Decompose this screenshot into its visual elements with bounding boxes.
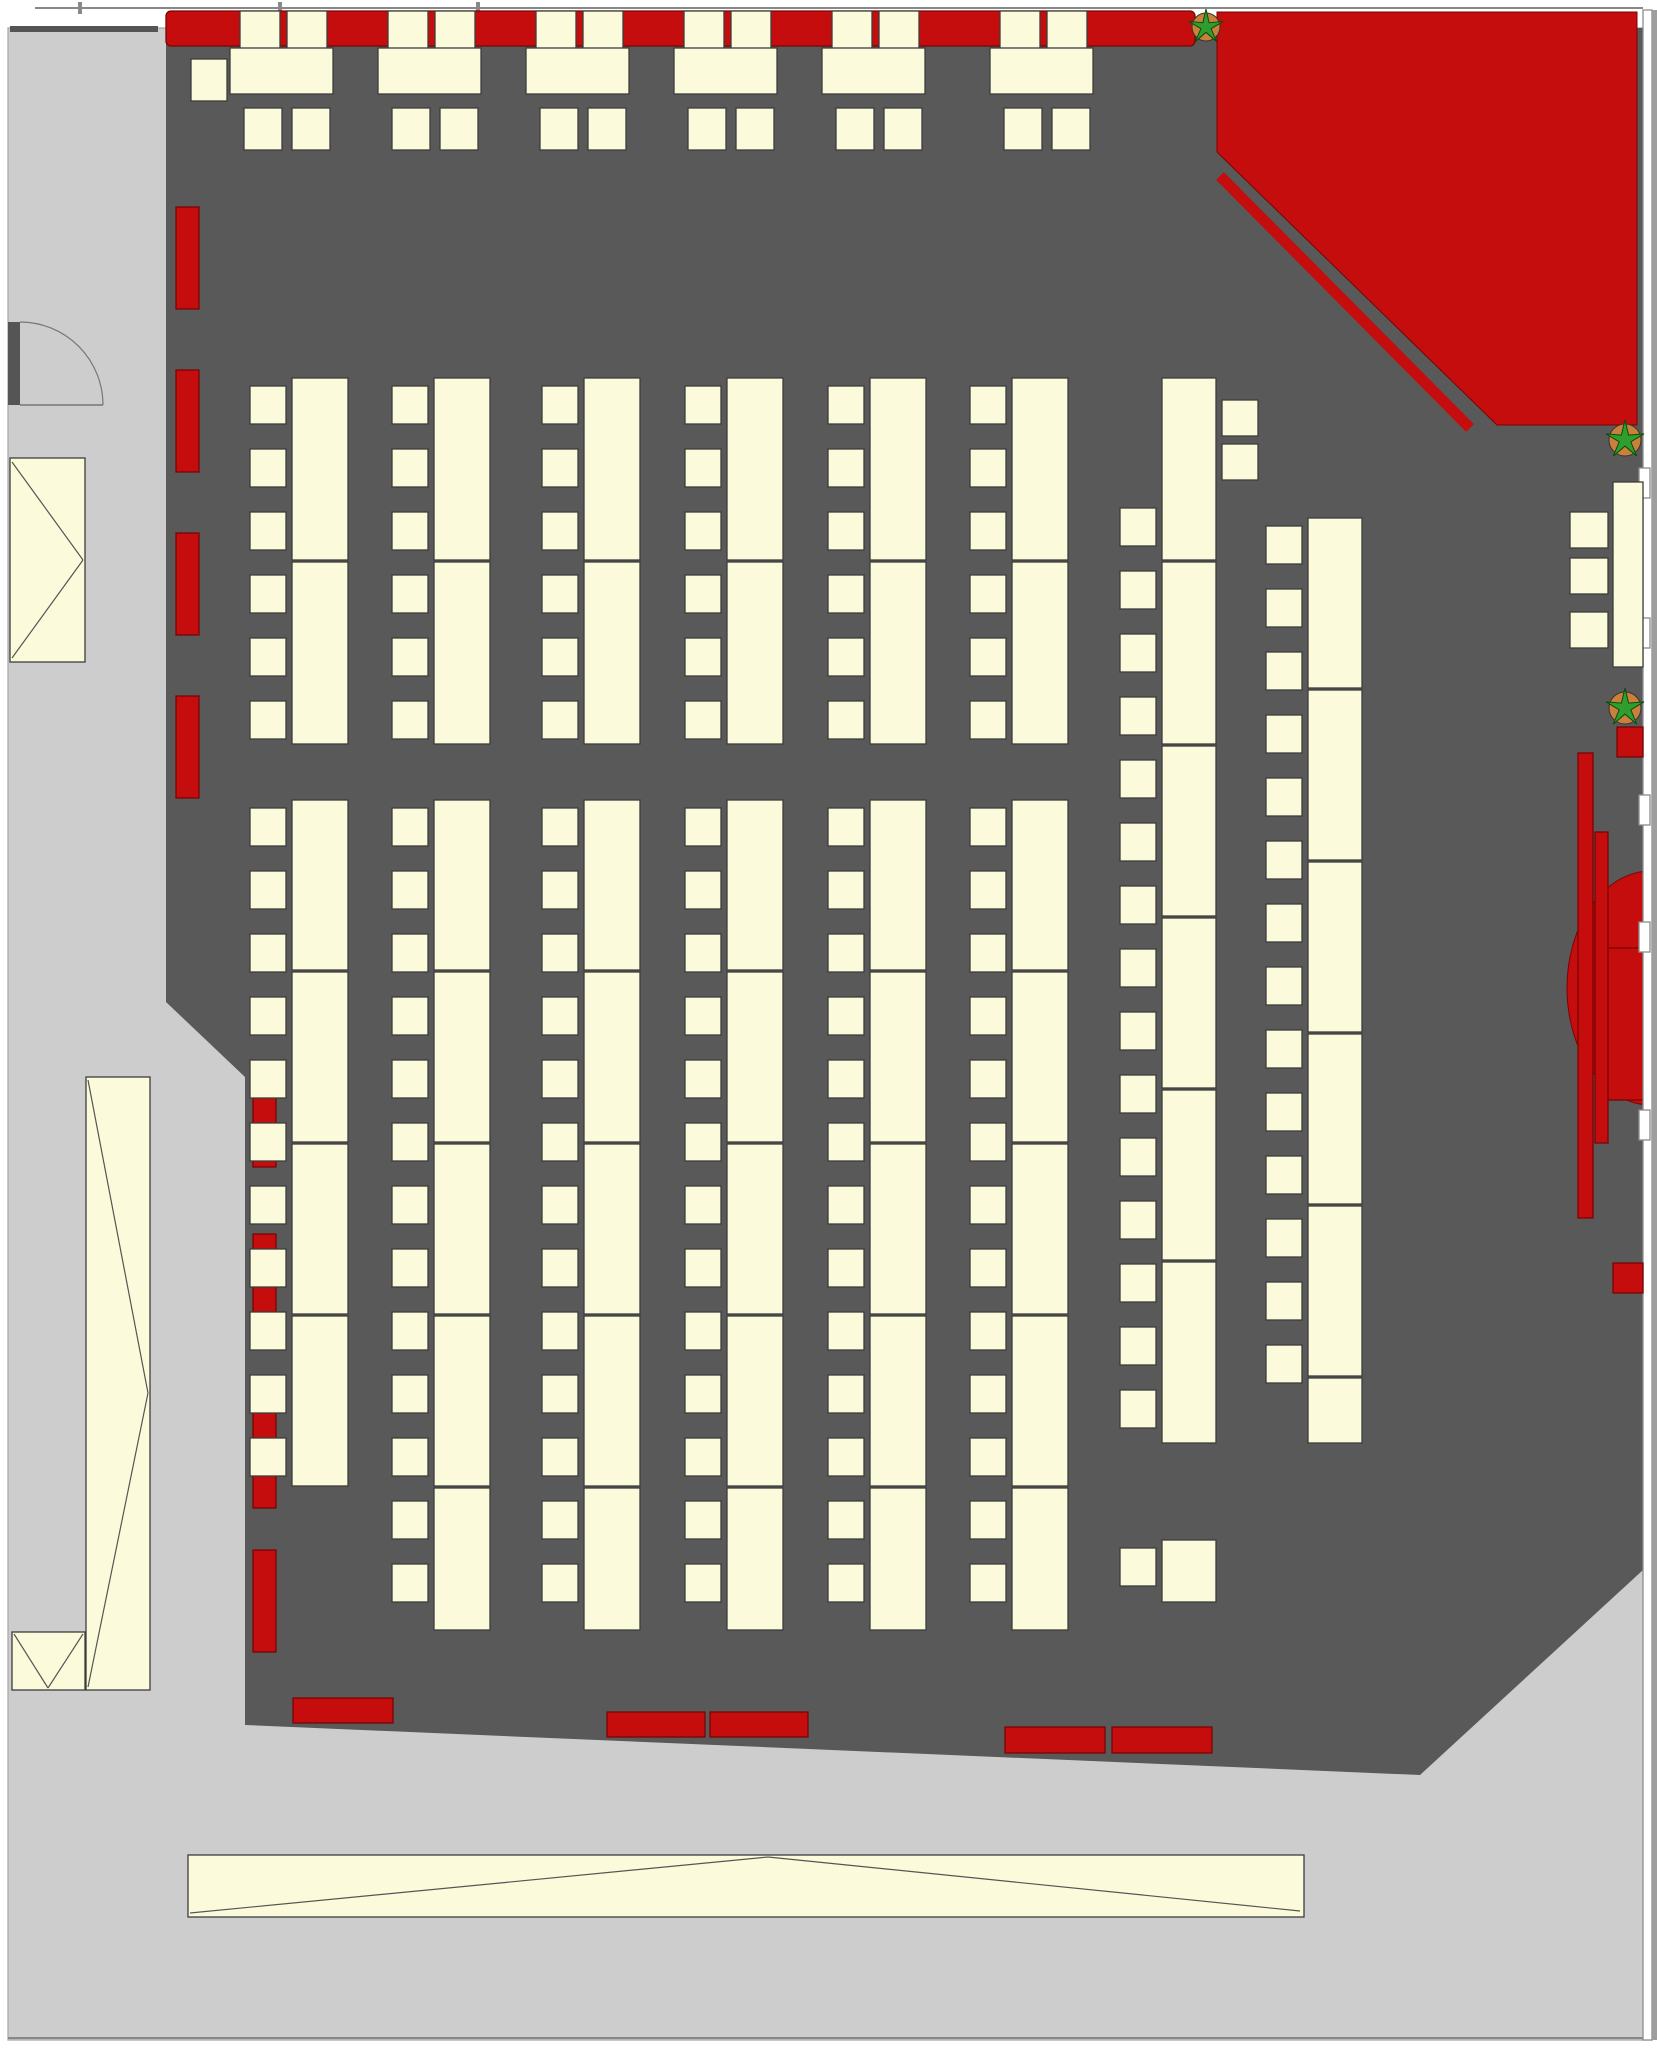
chair[interactable]: [250, 997, 286, 1035]
chair[interactable]: [828, 1501, 864, 1539]
chair[interactable]: [542, 575, 578, 613]
dining-table[interactable]: [870, 1316, 926, 1486]
bench-chair[interactable]: [536, 11, 576, 49]
chair[interactable]: [1266, 778, 1302, 816]
dining-table[interactable]: [378, 48, 481, 94]
bench-chair[interactable]: [1000, 11, 1040, 49]
chair[interactable]: [828, 512, 864, 550]
chair[interactable]: [392, 997, 428, 1035]
chair[interactable]: [250, 934, 286, 972]
chair[interactable]: [1004, 108, 1042, 150]
chair[interactable]: [542, 1123, 578, 1161]
dining-table[interactable]: [526, 48, 629, 94]
chair[interactable]: [392, 1123, 428, 1161]
chair[interactable]: [1266, 841, 1302, 879]
chair[interactable]: [542, 386, 578, 424]
chair[interactable]: [1120, 1075, 1156, 1113]
chair[interactable]: [392, 449, 428, 487]
red-stool[interactable]: [1617, 727, 1643, 757]
window-frame: [1639, 922, 1650, 952]
dining-table[interactable]: [1162, 1540, 1216, 1602]
chair[interactable]: [1120, 949, 1156, 987]
dining-table[interactable]: [292, 972, 348, 1142]
chair[interactable]: [1266, 589, 1302, 627]
dining-table[interactable]: [1162, 1262, 1216, 1443]
chair[interactable]: [685, 512, 721, 550]
dining-table[interactable]: [727, 800, 783, 970]
bottom-bench[interactable]: [607, 1712, 705, 1737]
chair[interactable]: [191, 59, 227, 101]
chair[interactable]: [1052, 108, 1090, 150]
chair[interactable]: [542, 512, 578, 550]
chair[interactable]: [1120, 1327, 1156, 1365]
floor-plan: [0, 0, 1657, 2050]
chair[interactable]: [250, 449, 286, 487]
chair[interactable]: [1266, 1156, 1302, 1194]
chair[interactable]: [1266, 967, 1302, 1005]
chair[interactable]: [685, 638, 721, 676]
chair[interactable]: [1120, 760, 1156, 798]
dining-table[interactable]: [434, 1316, 490, 1486]
chair[interactable]: [970, 1186, 1006, 1224]
chair[interactable]: [540, 108, 578, 150]
chair[interactable]: [828, 449, 864, 487]
chair[interactable]: [542, 1501, 578, 1539]
chair[interactable]: [542, 1564, 578, 1602]
chair[interactable]: [970, 1312, 1006, 1350]
dining-table[interactable]: [292, 800, 348, 970]
chair[interactable]: [1266, 1030, 1302, 1068]
red-stool[interactable]: [1613, 1263, 1643, 1293]
chair[interactable]: [1222, 444, 1258, 480]
chair[interactable]: [685, 1438, 721, 1476]
dining-table[interactable]: [727, 1144, 783, 1314]
chair[interactable]: [392, 386, 428, 424]
chair[interactable]: [1266, 1093, 1302, 1131]
dining-table[interactable]: [584, 1144, 640, 1314]
chair[interactable]: [1266, 1219, 1302, 1257]
chair[interactable]: [685, 1312, 721, 1350]
dining-table[interactable]: [434, 562, 490, 744]
chair[interactable]: [1120, 886, 1156, 924]
chair[interactable]: [828, 808, 864, 846]
bench-chair[interactable]: [731, 11, 771, 49]
dining-table[interactable]: [1162, 746, 1216, 916]
dining-table[interactable]: [1308, 862, 1362, 1032]
dining-table[interactable]: [1308, 1378, 1362, 1443]
chair[interactable]: [828, 934, 864, 972]
dining-table[interactable]: [1012, 378, 1068, 560]
chair[interactable]: [250, 1186, 286, 1224]
dining-table[interactable]: [1613, 482, 1643, 667]
chair[interactable]: [1120, 508, 1156, 546]
chair[interactable]: [1120, 1201, 1156, 1239]
chair[interactable]: [970, 808, 1006, 846]
chair[interactable]: [250, 1249, 286, 1287]
chair[interactable]: [392, 1438, 428, 1476]
chair[interactable]: [1222, 400, 1258, 436]
chair[interactable]: [828, 386, 864, 424]
bench-chair[interactable]: [583, 11, 623, 49]
chair[interactable]: [1266, 652, 1302, 690]
chair[interactable]: [1266, 526, 1302, 564]
window-frame: [1639, 1110, 1650, 1140]
service-bar[interactable]: [253, 1550, 276, 1652]
chair[interactable]: [392, 575, 428, 613]
dining-table[interactable]: [1012, 562, 1068, 744]
chair[interactable]: [685, 1501, 721, 1539]
service-bar[interactable]: [176, 370, 199, 472]
chair[interactable]: [828, 701, 864, 739]
floor-plan-svg: [0, 0, 1657, 2050]
dining-table[interactable]: [727, 1488, 783, 1630]
chair[interactable]: [685, 1564, 721, 1602]
dining-table[interactable]: [870, 972, 926, 1142]
stage-bar[interactable]: [1578, 753, 1593, 1218]
chair[interactable]: [736, 108, 774, 150]
chair[interactable]: [828, 1186, 864, 1224]
chair[interactable]: [970, 1060, 1006, 1098]
dining-table[interactable]: [1308, 518, 1362, 688]
chair[interactable]: [828, 1438, 864, 1476]
dining-table[interactable]: [870, 1488, 926, 1630]
chair[interactable]: [392, 108, 430, 150]
chair[interactable]: [392, 1501, 428, 1539]
round-stage-table[interactable]: [1607, 948, 1643, 1100]
dining-table[interactable]: [434, 1144, 490, 1314]
bench-chair[interactable]: [1047, 11, 1087, 49]
chair[interactable]: [685, 1186, 721, 1224]
escalator[interactable]: [86, 1077, 150, 1690]
bench-chair[interactable]: [240, 11, 280, 49]
corridor-top-wall: [10, 26, 158, 32]
chair[interactable]: [1570, 512, 1608, 548]
chair[interactable]: [1266, 1282, 1302, 1320]
chair[interactable]: [588, 108, 626, 150]
chair[interactable]: [828, 1375, 864, 1413]
dining-table[interactable]: [1162, 1090, 1216, 1260]
dining-table[interactable]: [230, 48, 333, 94]
bottom-bench[interactable]: [293, 1698, 393, 1723]
chair[interactable]: [970, 575, 1006, 613]
service-bar[interactable]: [176, 207, 199, 309]
chair[interactable]: [685, 871, 721, 909]
chair[interactable]: [1120, 1390, 1156, 1428]
chair[interactable]: [685, 449, 721, 487]
chair[interactable]: [250, 512, 286, 550]
chair[interactable]: [250, 808, 286, 846]
chair[interactable]: [1120, 1264, 1156, 1302]
chair[interactable]: [542, 701, 578, 739]
chair[interactable]: [970, 934, 1006, 972]
stairs-landing[interactable]: [12, 1632, 85, 1690]
chair[interactable]: [970, 449, 1006, 487]
chair[interactable]: [970, 1249, 1006, 1287]
chair[interactable]: [836, 108, 874, 150]
bench-chair[interactable]: [684, 11, 724, 49]
window-frame: [1639, 795, 1650, 825]
dining-table[interactable]: [870, 1144, 926, 1314]
chair[interactable]: [1266, 1345, 1302, 1383]
chair[interactable]: [685, 575, 721, 613]
service-bar[interactable]: [176, 533, 199, 635]
chair[interactable]: [828, 1123, 864, 1161]
chair[interactable]: [828, 638, 864, 676]
chair[interactable]: [1266, 715, 1302, 753]
chair[interactable]: [685, 1375, 721, 1413]
service-bar[interactable]: [176, 696, 199, 798]
dining-table[interactable]: [870, 562, 926, 744]
dining-table[interactable]: [1012, 1316, 1068, 1486]
dining-table[interactable]: [292, 1316, 348, 1486]
chair[interactable]: [250, 575, 286, 613]
dining-table[interactable]: [674, 48, 777, 94]
dining-table[interactable]: [990, 48, 1093, 94]
dining-table[interactable]: [434, 972, 490, 1142]
dining-table[interactable]: [292, 1144, 348, 1314]
dining-table[interactable]: [1308, 690, 1362, 860]
chair[interactable]: [1120, 571, 1156, 609]
door-jamb: [8, 322, 20, 405]
chair[interactable]: [685, 701, 721, 739]
dining-table[interactable]: [1162, 378, 1216, 560]
chair[interactable]: [542, 1438, 578, 1476]
chair[interactable]: [685, 386, 721, 424]
dining-table[interactable]: [727, 378, 783, 560]
chair[interactable]: [542, 997, 578, 1035]
chair[interactable]: [884, 108, 922, 150]
chair[interactable]: [1120, 634, 1156, 672]
right-margin-strip: [1652, 10, 1657, 2040]
chair[interactable]: [392, 1060, 428, 1098]
chair[interactable]: [970, 638, 1006, 676]
wall-tick: [78, 2, 82, 14]
chair[interactable]: [970, 871, 1006, 909]
dining-table[interactable]: [584, 972, 640, 1142]
bottom-bench[interactable]: [1112, 1727, 1212, 1753]
chair[interactable]: [250, 1060, 286, 1098]
chair[interactable]: [392, 701, 428, 739]
chair[interactable]: [542, 871, 578, 909]
chair[interactable]: [1120, 1138, 1156, 1176]
chair[interactable]: [392, 1186, 428, 1224]
chair[interactable]: [542, 1249, 578, 1287]
chair[interactable]: [1120, 1548, 1156, 1586]
chair[interactable]: [392, 1312, 428, 1350]
chair[interactable]: [250, 871, 286, 909]
chair[interactable]: [1266, 904, 1302, 942]
stairs[interactable]: [10, 458, 85, 662]
chair[interactable]: [970, 701, 1006, 739]
chair[interactable]: [392, 1564, 428, 1602]
dining-table[interactable]: [870, 378, 926, 560]
chair[interactable]: [685, 1123, 721, 1161]
dining-table[interactable]: [1012, 800, 1068, 970]
chair[interactable]: [250, 1123, 286, 1161]
bottom-bench[interactable]: [710, 1712, 808, 1737]
bottom-counter[interactable]: [188, 1855, 1304, 1917]
chair[interactable]: [828, 1564, 864, 1602]
dining-table[interactable]: [434, 800, 490, 970]
dining-table[interactable]: [292, 562, 348, 744]
chair[interactable]: [970, 997, 1006, 1035]
dining-table[interactable]: [584, 800, 640, 970]
chair[interactable]: [250, 386, 286, 424]
chair[interactable]: [392, 512, 428, 550]
chair[interactable]: [828, 1060, 864, 1098]
chair[interactable]: [685, 808, 721, 846]
right-wall: [1643, 10, 1652, 2040]
dining-table[interactable]: [1308, 1206, 1362, 1376]
chair[interactable]: [542, 1060, 578, 1098]
bench-chair[interactable]: [879, 11, 919, 49]
chair[interactable]: [1120, 823, 1156, 861]
stage-bar[interactable]: [1595, 832, 1608, 1143]
dining-table[interactable]: [434, 378, 490, 560]
dining-table[interactable]: [870, 800, 926, 970]
dining-table[interactable]: [1012, 1488, 1068, 1630]
chair[interactable]: [392, 1249, 428, 1287]
dining-table[interactable]: [584, 1488, 640, 1630]
dining-table[interactable]: [584, 562, 640, 744]
chair[interactable]: [685, 1060, 721, 1098]
chair[interactable]: [1570, 612, 1608, 648]
chair[interactable]: [970, 386, 1006, 424]
bench-chair[interactable]: [388, 11, 428, 49]
dining-table[interactable]: [822, 48, 925, 94]
chair[interactable]: [250, 638, 286, 676]
chair[interactable]: [685, 934, 721, 972]
bench-chair[interactable]: [287, 11, 327, 49]
chair[interactable]: [440, 108, 478, 150]
chair[interactable]: [542, 1375, 578, 1413]
dining-table[interactable]: [584, 1316, 640, 1486]
chair[interactable]: [688, 108, 726, 150]
dining-table[interactable]: [584, 378, 640, 560]
dining-table[interactable]: [292, 378, 348, 560]
chair[interactable]: [392, 871, 428, 909]
chair[interactable]: [1120, 1012, 1156, 1050]
chair[interactable]: [244, 108, 282, 150]
chair[interactable]: [970, 1564, 1006, 1602]
dining-table[interactable]: [1162, 562, 1216, 744]
chair[interactable]: [292, 108, 330, 150]
chair[interactable]: [542, 1186, 578, 1224]
dining-table[interactable]: [1012, 1144, 1068, 1314]
dining-table[interactable]: [727, 1316, 783, 1486]
chair[interactable]: [542, 1312, 578, 1350]
chair[interactable]: [970, 1438, 1006, 1476]
dining-table[interactable]: [727, 972, 783, 1142]
chair[interactable]: [250, 701, 286, 739]
dining-table[interactable]: [1162, 918, 1216, 1088]
chair[interactable]: [828, 575, 864, 613]
chair[interactable]: [685, 1249, 721, 1287]
chair[interactable]: [542, 449, 578, 487]
chair[interactable]: [250, 1375, 286, 1413]
chair[interactable]: [542, 934, 578, 972]
chair[interactable]: [392, 808, 428, 846]
chair[interactable]: [828, 997, 864, 1035]
dining-table[interactable]: [727, 562, 783, 744]
chair[interactable]: [250, 1312, 286, 1350]
chair[interactable]: [685, 997, 721, 1035]
chair[interactable]: [828, 1312, 864, 1350]
chair[interactable]: [392, 934, 428, 972]
chair[interactable]: [392, 1375, 428, 1413]
dining-table[interactable]: [1308, 1034, 1362, 1204]
chair[interactable]: [970, 1123, 1006, 1161]
bench-chair[interactable]: [832, 11, 872, 49]
dining-table[interactable]: [434, 1488, 490, 1630]
chair[interactable]: [1120, 697, 1156, 735]
chair[interactable]: [542, 638, 578, 676]
chair[interactable]: [970, 512, 1006, 550]
chair[interactable]: [392, 638, 428, 676]
dining-table[interactable]: [1012, 972, 1068, 1142]
chair[interactable]: [828, 1249, 864, 1287]
chair[interactable]: [970, 1501, 1006, 1539]
bottom-bench[interactable]: [1005, 1727, 1105, 1753]
chair[interactable]: [542, 808, 578, 846]
chair[interactable]: [1570, 558, 1608, 594]
chair[interactable]: [828, 871, 864, 909]
chair[interactable]: [970, 1375, 1006, 1413]
bench-chair[interactable]: [435, 11, 475, 49]
chair[interactable]: [250, 1438, 286, 1476]
